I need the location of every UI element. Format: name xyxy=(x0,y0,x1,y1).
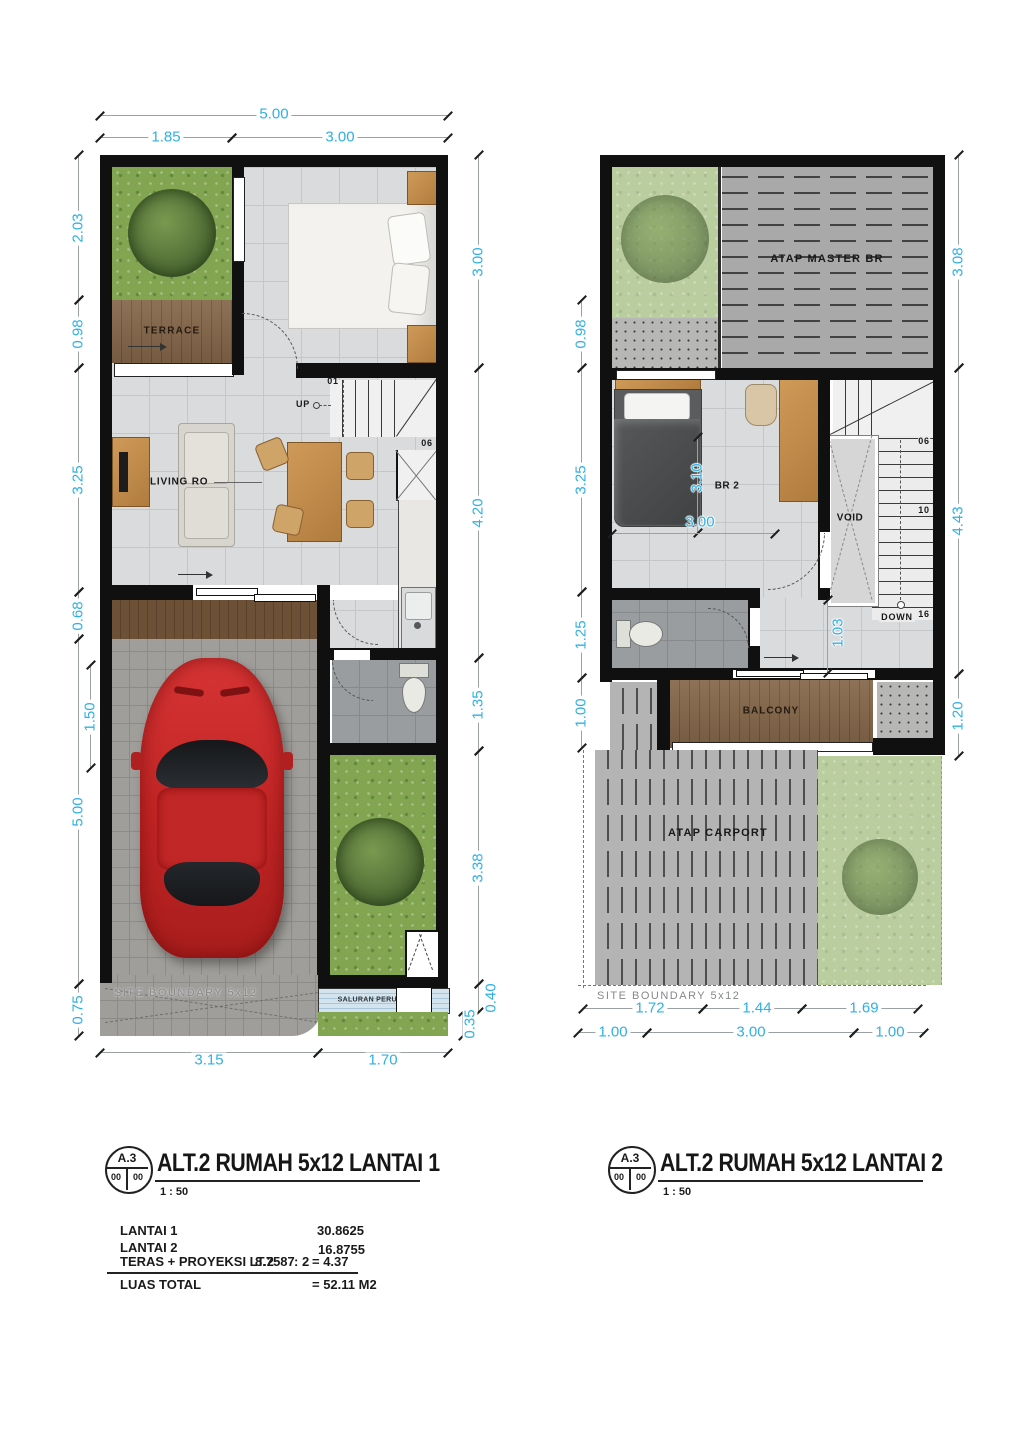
sliding-door-leaf xyxy=(736,670,804,677)
wall xyxy=(600,155,945,167)
dim-line xyxy=(612,533,775,534)
dim-label: 1.00 xyxy=(872,1025,907,1040)
area-row-value: 30.8625 xyxy=(317,1223,364,1238)
br2-chair xyxy=(745,384,777,426)
dining-chair xyxy=(271,503,304,536)
site-boundary-line xyxy=(941,756,942,985)
door-opening xyxy=(750,608,760,646)
area-total-label: LUAS TOTAL xyxy=(120,1277,201,1292)
area-row-value: = 4.37 xyxy=(312,1254,349,1269)
dim-label: 3.25 xyxy=(574,462,589,497)
dim-label: 1.20 xyxy=(951,698,966,733)
dim-label: 0.98 xyxy=(574,316,589,351)
dining-chair xyxy=(346,500,374,528)
wall xyxy=(296,363,436,378)
car-rear-window xyxy=(164,862,260,906)
wall xyxy=(600,155,612,682)
dim-label: 5.00 xyxy=(256,107,291,122)
wall xyxy=(933,155,945,755)
br2-pillow xyxy=(624,393,690,421)
gate-box xyxy=(405,930,440,979)
dim-label: 3.00 xyxy=(682,515,717,530)
dim-label: 3.38 xyxy=(471,850,486,885)
sofa-cushion xyxy=(184,487,229,539)
dim-label: 1.00 xyxy=(574,695,589,730)
toilet-tank xyxy=(399,663,429,678)
dim-label: 1.25 xyxy=(574,617,589,652)
stairs-up-label: UP xyxy=(296,399,310,409)
wall xyxy=(436,155,448,988)
drawing-code: A.3 xyxy=(621,1151,640,1165)
window xyxy=(233,177,245,262)
step-number: 01 xyxy=(327,376,339,386)
step-number: 06 xyxy=(918,436,930,446)
room-label-atap-carport: ATAP CARPORT xyxy=(668,827,768,839)
br2-duvet xyxy=(614,419,700,525)
wall xyxy=(612,588,760,600)
scale-label: 1 : 50 xyxy=(663,1186,691,1198)
area-row-label: TERAS + PROYEKSI LT.2 xyxy=(120,1254,274,1269)
drawing-cell: 00 xyxy=(614,1172,624,1182)
dim-label: 1.03 xyxy=(831,615,846,650)
room-label-living: LIVING RO xyxy=(150,477,208,488)
wall xyxy=(330,743,436,755)
drawing-cell: 00 xyxy=(111,1172,121,1182)
entry-arrow xyxy=(128,346,160,347)
stairs-down-label: DOWN xyxy=(879,612,915,622)
br2-desk xyxy=(779,378,819,502)
tv xyxy=(119,452,128,492)
sliding-door-leaf xyxy=(196,588,258,596)
wall xyxy=(657,680,670,750)
scale-label: 1 : 50 xyxy=(160,1186,188,1198)
dim-label: 1.50 xyxy=(83,699,98,734)
plan-title-lantai2: ALT.2 RUMAH 5x12 LANTAI 2 xyxy=(660,1149,943,1178)
dim-line xyxy=(478,984,479,1012)
drawing-cell: 00 xyxy=(133,1172,143,1182)
label-leader-line xyxy=(214,482,262,483)
stairs-centerline xyxy=(343,380,344,437)
nightstand xyxy=(407,325,439,363)
down-marker-dot xyxy=(897,601,905,609)
step-number: 16 xyxy=(918,609,930,619)
drawing-cell: 00 xyxy=(636,1172,646,1182)
room-label-terrace: TERRACE xyxy=(144,326,201,337)
roof-master-br xyxy=(722,167,933,368)
dim-label: 4.20 xyxy=(471,495,486,530)
site-boundary-label: SITE BOUNDARY 5x12 xyxy=(114,987,257,999)
roof-divider xyxy=(718,167,721,368)
sliding-door-leaf xyxy=(800,673,868,680)
title-bubble-divider xyxy=(126,1169,128,1190)
wall xyxy=(873,738,945,755)
door-opening xyxy=(334,650,370,660)
car-mirror xyxy=(131,752,142,770)
roof-carport xyxy=(595,750,818,985)
car-roof xyxy=(157,788,267,870)
dining-chair xyxy=(346,452,374,480)
wall xyxy=(112,585,193,600)
dim-line xyxy=(827,600,828,673)
window xyxy=(616,370,716,380)
car-mirror xyxy=(282,752,293,770)
dim-label: 1.35 xyxy=(471,687,486,722)
tree-front xyxy=(128,189,216,277)
dim-label: 4.43 xyxy=(951,503,966,538)
dim-label: 1.44 xyxy=(739,1001,774,1016)
dim-label: 1.72 xyxy=(632,1001,667,1016)
wall xyxy=(100,155,448,167)
dim-label: 0.35 xyxy=(463,1006,478,1041)
site-boundary-line xyxy=(578,985,926,986)
grass-verge xyxy=(318,1012,448,1036)
title-underline xyxy=(155,1180,420,1182)
sink-faucet xyxy=(414,622,421,629)
nightstand xyxy=(407,171,439,205)
area-total-value: = 52.11 M2 xyxy=(312,1277,377,1292)
dim-label: 3.10 xyxy=(690,460,705,495)
title-bubble-divider xyxy=(629,1169,631,1190)
dim-label: 2.03 xyxy=(71,210,86,245)
toilet2-bowl xyxy=(629,621,663,647)
tree-rear xyxy=(336,818,424,906)
step-number: 10 xyxy=(918,505,930,515)
sink-basin xyxy=(405,592,432,620)
dim-label: 0.40 xyxy=(484,980,499,1015)
pillow xyxy=(387,262,430,316)
stairs2-run xyxy=(872,436,933,620)
area-row-calc: 8.7587 xyxy=(255,1254,295,1269)
roof-strip xyxy=(610,682,657,750)
room-label-br2: BR 2 xyxy=(715,481,739,492)
tv-console xyxy=(112,437,150,507)
table-rule xyxy=(107,1272,358,1274)
site-boundary-line xyxy=(583,750,584,988)
room-label-void: VOID xyxy=(837,513,863,524)
wall xyxy=(100,155,112,983)
plan-title-lantai1: ALT.2 RUMAH 5x12 LANTAI 1 xyxy=(157,1149,440,1178)
dim-label: 3.00 xyxy=(471,244,486,279)
concrete-ledge xyxy=(612,318,718,368)
dim-label: 0.98 xyxy=(71,316,86,351)
tree-below xyxy=(621,195,709,283)
dim-label: 3.08 xyxy=(951,244,966,279)
tree-below xyxy=(842,839,918,915)
dim-label: 3.15 xyxy=(191,1053,226,1068)
title-underline xyxy=(658,1180,923,1182)
dim-label: 3.00 xyxy=(322,130,357,145)
area-row-label: LANTAI 2 xyxy=(120,1240,178,1255)
dim-label: 1.69 xyxy=(846,1001,881,1016)
step-number: 06 xyxy=(421,438,433,448)
stairs2-centerline xyxy=(900,440,901,600)
dim-label: 3.00 xyxy=(733,1025,768,1040)
stairs-straight-run xyxy=(330,380,396,437)
dim-label: 1.00 xyxy=(595,1025,630,1040)
floorplan-sheet: SALURAN PERUMAHAN xyxy=(0,0,1024,1448)
dim-label: 1.70 xyxy=(365,1053,400,1068)
room-label-atap-master: ATAP MASTER BR xyxy=(770,253,883,265)
sliding-door-leaf xyxy=(254,594,316,602)
area-row-label: LANTAI 1 xyxy=(120,1223,178,1238)
wall xyxy=(317,585,330,975)
terrace-step xyxy=(114,363,234,377)
area-row-divisor: : 2 xyxy=(294,1254,309,1269)
dim-label: 1.85 xyxy=(148,130,183,145)
flow-arrow xyxy=(764,657,792,658)
stairs2-landing xyxy=(879,380,933,436)
pillow xyxy=(387,212,432,267)
up-leader xyxy=(319,405,331,406)
dim-label: 5.00 xyxy=(71,794,86,829)
dim-label: 3.25 xyxy=(71,462,86,497)
dim-label: 0.68 xyxy=(71,598,86,633)
flow-arrow xyxy=(178,574,206,575)
concrete-ledge xyxy=(877,682,933,738)
carport-deck-strip xyxy=(112,600,318,639)
dim-label: 0.75 xyxy=(71,992,86,1027)
room-label-balcony: BALCONY xyxy=(743,706,799,717)
drawing-code: A.3 xyxy=(118,1151,137,1165)
site-boundary-label: SITE BOUNDARY 5x12 xyxy=(597,990,740,1002)
